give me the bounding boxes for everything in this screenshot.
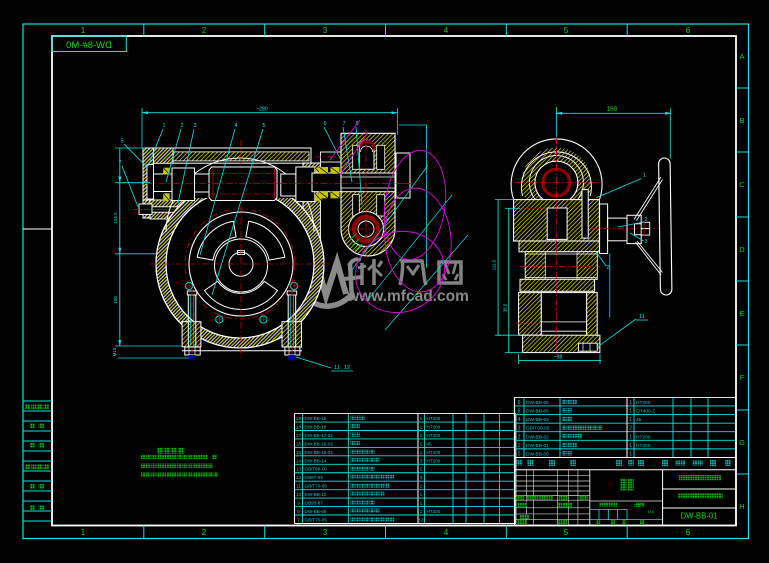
- svg-text:2: 2: [420, 467, 423, 473]
- svg-text:1: 1: [643, 173, 646, 179]
- svg-text:1: 1: [81, 26, 86, 35]
- svg-text:DW-BB-01: DW-BB-01: [680, 512, 717, 521]
- svg-text:1: 1: [629, 409, 632, 415]
- svg-text:~98: ~98: [554, 354, 563, 360]
- svg-text:8: 8: [297, 509, 300, 515]
- svg-text:HT200: HT200: [427, 433, 441, 438]
- svg-text:GB93-87: GB93-87: [305, 501, 324, 506]
- svg-text:12: 12: [296, 475, 302, 481]
- svg-text:45: 45: [636, 417, 642, 423]
- svg-text:1: 1: [629, 400, 632, 406]
- svg-text:5: 5: [518, 409, 521, 415]
- svg-text:DW-BB-00: DW-BB-00: [526, 451, 549, 457]
- svg-text:38.5: 38.5: [503, 303, 508, 312]
- svg-text:3: 3: [323, 26, 328, 35]
- svg-text:180: 180: [607, 106, 618, 113]
- svg-text:1: 1: [420, 509, 423, 515]
- svg-text:DW-BB-06: DW-BB-06: [526, 400, 549, 406]
- svg-text:2: 2: [202, 26, 207, 35]
- svg-text:10: 10: [296, 492, 302, 498]
- svg-text:GB97-85: GB97-85: [305, 475, 324, 480]
- svg-text:5: 5: [564, 528, 569, 537]
- svg-text:HT200: HT200: [427, 509, 441, 514]
- svg-text:DW-BB-14: DW-BB-14: [305, 458, 327, 463]
- svg-text:0: 0: [518, 451, 521, 457]
- svg-text:4: 4: [444, 26, 449, 35]
- svg-text:1: 1: [629, 451, 632, 457]
- svg-text:4: 4: [518, 417, 521, 423]
- svg-text:DW-BB-10: DW-BB-10: [305, 492, 327, 497]
- svg-text:17: 17: [296, 433, 302, 439]
- svg-text:7: 7: [297, 517, 300, 523]
- svg-text:HT200: HT200: [427, 458, 441, 463]
- svg-text:12: 12: [418, 517, 424, 523]
- svg-text:1:2: 1:2: [634, 503, 641, 508]
- svg-text:6: 6: [323, 121, 326, 127]
- svg-text:2: 2: [629, 426, 632, 432]
- svg-text:C: C: [739, 180, 745, 189]
- svg-text:2: 2: [644, 217, 647, 223]
- svg-text:1: 1: [629, 417, 632, 423]
- svg-text:3: 3: [518, 426, 521, 432]
- svg-text:11: 11: [296, 484, 301, 490]
- svg-text:15: 15: [296, 450, 302, 456]
- svg-text:1: 1: [420, 433, 423, 439]
- svg-text:B: B: [739, 116, 744, 125]
- svg-text:12: 12: [344, 365, 350, 371]
- svg-text:3: 3: [644, 239, 647, 245]
- svg-text:GB/T70-85: GB/T70-85: [305, 484, 328, 489]
- svg-text:P4: P4: [648, 510, 654, 516]
- svg-text:1: 1: [162, 123, 165, 129]
- svg-text:HT200: HT200: [427, 424, 441, 429]
- svg-text:5: 5: [262, 123, 265, 129]
- svg-text:GB/T70-85: GB/T70-85: [305, 517, 328, 522]
- svg-text:2: 2: [202, 528, 207, 537]
- svg-text:6: 6: [686, 26, 691, 35]
- svg-text:14: 14: [296, 458, 302, 464]
- svg-text:3: 3: [420, 458, 423, 464]
- svg-text:13: 13: [296, 467, 302, 473]
- svg-text:11: 11: [639, 314, 645, 320]
- svg-text:111.5: 111.5: [492, 259, 497, 270]
- svg-text:1: 1: [420, 450, 423, 456]
- svg-text:7: 7: [342, 121, 345, 127]
- svg-text:D: D: [739, 245, 745, 254]
- svg-text:7: 7: [118, 160, 121, 166]
- svg-text:19: 19: [296, 416, 302, 422]
- svg-text:1: 1: [420, 484, 423, 490]
- svg-text:2: 2: [180, 123, 183, 129]
- svg-text:1: 1: [420, 492, 423, 498]
- svg-text:www.mfcad.com: www.mfcad.com: [346, 288, 469, 305]
- svg-text:F: F: [740, 373, 745, 382]
- svg-text:HT200: HT200: [636, 400, 651, 406]
- svg-text:2: 2: [518, 434, 521, 440]
- svg-text:16: 16: [296, 441, 302, 447]
- svg-text:5: 5: [120, 139, 123, 145]
- svg-text:DW-BB-16-02: DW-BB-16-02: [305, 441, 334, 446]
- svg-text:GB/T80-85: GB/T80-85: [526, 426, 550, 432]
- svg-text:3: 3: [323, 528, 328, 537]
- svg-text:100: 100: [113, 296, 118, 304]
- svg-text:4: 4: [234, 123, 237, 129]
- svg-text:1: 1: [629, 434, 632, 440]
- svg-text:1: 1: [420, 424, 423, 430]
- svg-text:QT400-Z: QT400-Z: [636, 409, 655, 415]
- svg-text:HT200: HT200: [636, 443, 651, 449]
- svg-text:9: 9: [297, 501, 300, 507]
- svg-text:2: 2: [606, 265, 609, 271]
- svg-text:DW-BB-05: DW-BB-05: [526, 409, 549, 415]
- svg-text:HT200: HT200: [427, 416, 441, 421]
- svg-text:E: E: [739, 309, 744, 318]
- svg-text:18: 18: [296, 424, 302, 430]
- svg-text:DW-BB-18: DW-BB-18: [305, 424, 327, 429]
- svg-text:3: 3: [420, 475, 423, 481]
- svg-text:GB/T68-00: GB/T68-00: [305, 467, 328, 472]
- svg-text:6: 6: [686, 528, 691, 537]
- svg-text:6: 6: [518, 400, 521, 406]
- svg-text:11: 11: [334, 365, 340, 371]
- svg-text:1: 1: [420, 441, 423, 447]
- svg-text:HT200: HT200: [636, 434, 651, 440]
- svg-text:DW-8#-M0: DW-8#-M0: [66, 40, 112, 51]
- svg-text:DW-BB-17-01: DW-BB-17-01: [305, 433, 334, 438]
- svg-text:4: 4: [444, 528, 449, 537]
- svg-text:1: 1: [420, 501, 423, 507]
- svg-text:45: 45: [427, 441, 433, 446]
- svg-text:DW-BB-19: DW-BB-19: [305, 416, 327, 421]
- svg-text:H: H: [739, 502, 744, 511]
- svg-text:DW-BB-15-01: DW-BB-15-01: [305, 450, 334, 455]
- svg-text:DW-BB-04: DW-BB-04: [526, 417, 549, 423]
- svg-text:DW-BB-08: DW-BB-08: [305, 509, 327, 514]
- svg-text:HT200: HT200: [427, 450, 441, 455]
- svg-text:134.5: 134.5: [113, 212, 118, 224]
- svg-text:3: 3: [193, 123, 196, 129]
- svg-text:G: G: [739, 438, 745, 447]
- svg-text:A: A: [739, 52, 744, 61]
- svg-text:5: 5: [564, 26, 569, 35]
- svg-text:1: 1: [81, 528, 86, 537]
- svg-text:1: 1: [420, 416, 423, 422]
- svg-text:1: 1: [518, 443, 521, 449]
- svg-text:~280: ~280: [256, 107, 267, 113]
- svg-text:M10: M10: [112, 347, 117, 356]
- svg-text:DW-BB-02: DW-BB-02: [526, 434, 549, 440]
- svg-text:DW-BB-01: DW-BB-01: [526, 443, 549, 449]
- svg-text:1: 1: [629, 443, 632, 449]
